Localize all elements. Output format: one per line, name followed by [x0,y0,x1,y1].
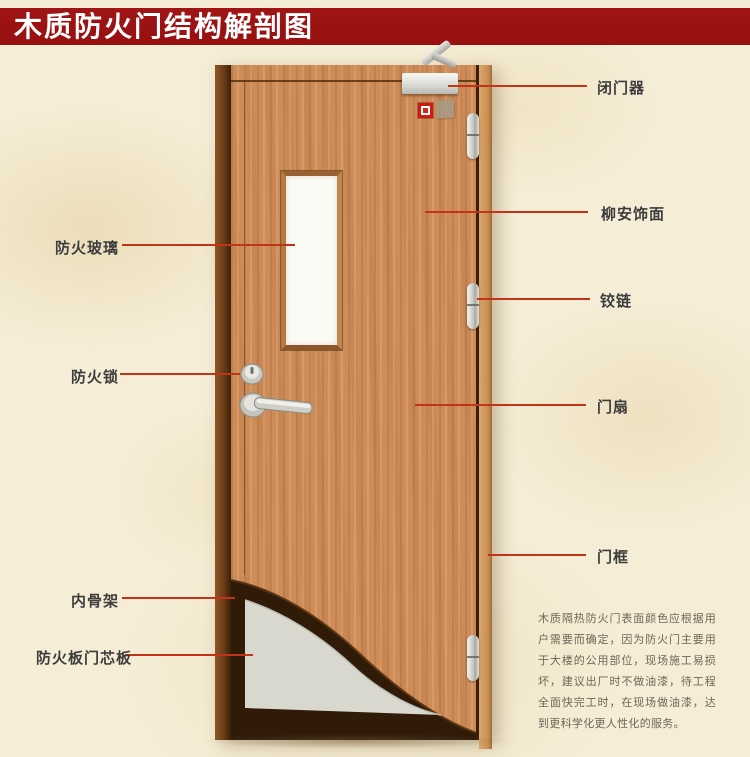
title-banner: 木质防火门结构解剖图 [0,8,750,45]
leader-hinge [477,298,590,300]
leader-door-closer [448,85,587,87]
leader-inner-skeleton [122,597,235,599]
leader-lauan-veneer [425,211,588,213]
cutaway-section [231,570,476,740]
label-fire-board-core: 防火板门芯板 [36,647,132,668]
door-frame-left-jamb [215,65,231,740]
leaf-inset-line-left [244,80,245,575]
page-title: 木质防火门结构解剖图 [14,8,314,45]
door-frame-right-jamb [479,65,492,749]
fire-glass-window [281,171,342,350]
label-hinge: 铰链 [600,290,632,311]
label-door-leaf: 门扇 [597,396,629,417]
hinge-top [467,113,479,159]
fire-rating-tag [418,103,433,118]
leader-fire-lock [120,373,240,375]
label-lauan-veneer: 柳安饰面 [601,203,665,224]
fire-lock-set [231,355,341,425]
leader-fire-board-core [125,654,253,656]
hinge-middle [467,283,479,329]
door-ground-shadow [198,733,514,749]
label-fire-glass: 防火玻璃 [55,237,119,258]
label-door-closer: 闭门器 [597,77,645,98]
closer-mount-plate [436,99,454,118]
leader-fire-glass [122,244,295,246]
leader-door-leaf [415,404,586,406]
door-illustration [215,65,492,740]
label-door-frame: 门框 [597,546,629,567]
label-fire-lock: 防火锁 [71,366,119,387]
leader-door-frame [488,554,586,556]
diagram-canvas: 木质防火门结构解剖图 [0,0,750,757]
door-closer-body [402,73,458,94]
description-text: 木质隔热防火门表面颜色应根据用户需要而确定，因为防火门主要用于大楼的公用部位，现… [538,609,716,735]
label-inner-skeleton: 内骨架 [71,590,119,611]
